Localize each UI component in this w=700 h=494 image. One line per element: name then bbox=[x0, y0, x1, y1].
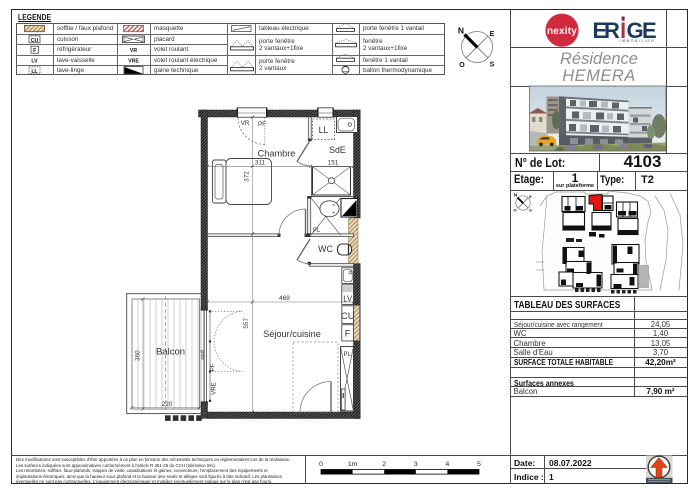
svg-text:seuil: seuil bbox=[199, 350, 204, 359]
svg-text:0: 0 bbox=[319, 461, 323, 468]
svg-text:3: 3 bbox=[414, 461, 418, 468]
svg-text:Balcon: Balcon bbox=[156, 347, 185, 358]
svg-text:PL: PL bbox=[344, 352, 352, 358]
svg-text:O: O bbox=[513, 208, 516, 213]
svg-text:nexity: nexity bbox=[547, 26, 577, 37]
svg-text:311: 311 bbox=[255, 159, 266, 166]
svg-text:Séjour/cuisine: Séjour/cuisine bbox=[263, 329, 321, 339]
svg-text:N: N bbox=[458, 26, 464, 36]
svg-text:469: 469 bbox=[279, 295, 290, 302]
svg-text:220: 220 bbox=[162, 401, 173, 408]
svg-text:S: S bbox=[490, 62, 495, 69]
svg-text:VRE: VRE bbox=[211, 382, 218, 395]
svg-text:Chambre: Chambre bbox=[258, 149, 296, 159]
svg-text:CU: CU bbox=[341, 311, 355, 322]
svg-text:557: 557 bbox=[243, 318, 250, 329]
svg-text:LL: LL bbox=[31, 69, 38, 75]
svg-text:S: S bbox=[529, 208, 532, 213]
svg-text:1m: 1m bbox=[348, 461, 358, 468]
svg-text:CU: CU bbox=[31, 38, 39, 44]
svg-text:PL: PL bbox=[313, 228, 321, 234]
svg-text:2: 2 bbox=[382, 461, 386, 468]
svg-text:R: R bbox=[604, 18, 620, 43]
svg-text:LL: LL bbox=[319, 125, 329, 135]
svg-text:LV: LV bbox=[31, 58, 38, 64]
svg-text:VR: VR bbox=[130, 48, 137, 54]
svg-text:PF: PF bbox=[258, 121, 266, 128]
svg-text:F: F bbox=[33, 48, 36, 54]
svg-text:N: N bbox=[514, 193, 518, 199]
svg-text:E: E bbox=[529, 194, 532, 199]
svg-text:O: O bbox=[459, 62, 465, 69]
svg-text:360: 360 bbox=[134, 350, 141, 361]
svg-text:151: 151 bbox=[328, 159, 339, 166]
svg-text:VRE: VRE bbox=[128, 59, 139, 65]
svg-text:4: 4 bbox=[446, 461, 450, 468]
svg-text:PF: PF bbox=[210, 363, 217, 371]
svg-text:LV: LV bbox=[343, 295, 353, 304]
svg-text:372: 372 bbox=[243, 171, 250, 182]
svg-text:WC: WC bbox=[318, 244, 333, 254]
svg-text:IMMOBILIER: IMMOBILIER bbox=[620, 39, 656, 43]
svg-text:F: F bbox=[345, 329, 351, 340]
svg-text:E: E bbox=[490, 31, 495, 38]
svg-text:SdE: SdE bbox=[329, 145, 346, 155]
svg-text:VR: VR bbox=[241, 120, 250, 127]
svg-text:5: 5 bbox=[477, 461, 481, 468]
